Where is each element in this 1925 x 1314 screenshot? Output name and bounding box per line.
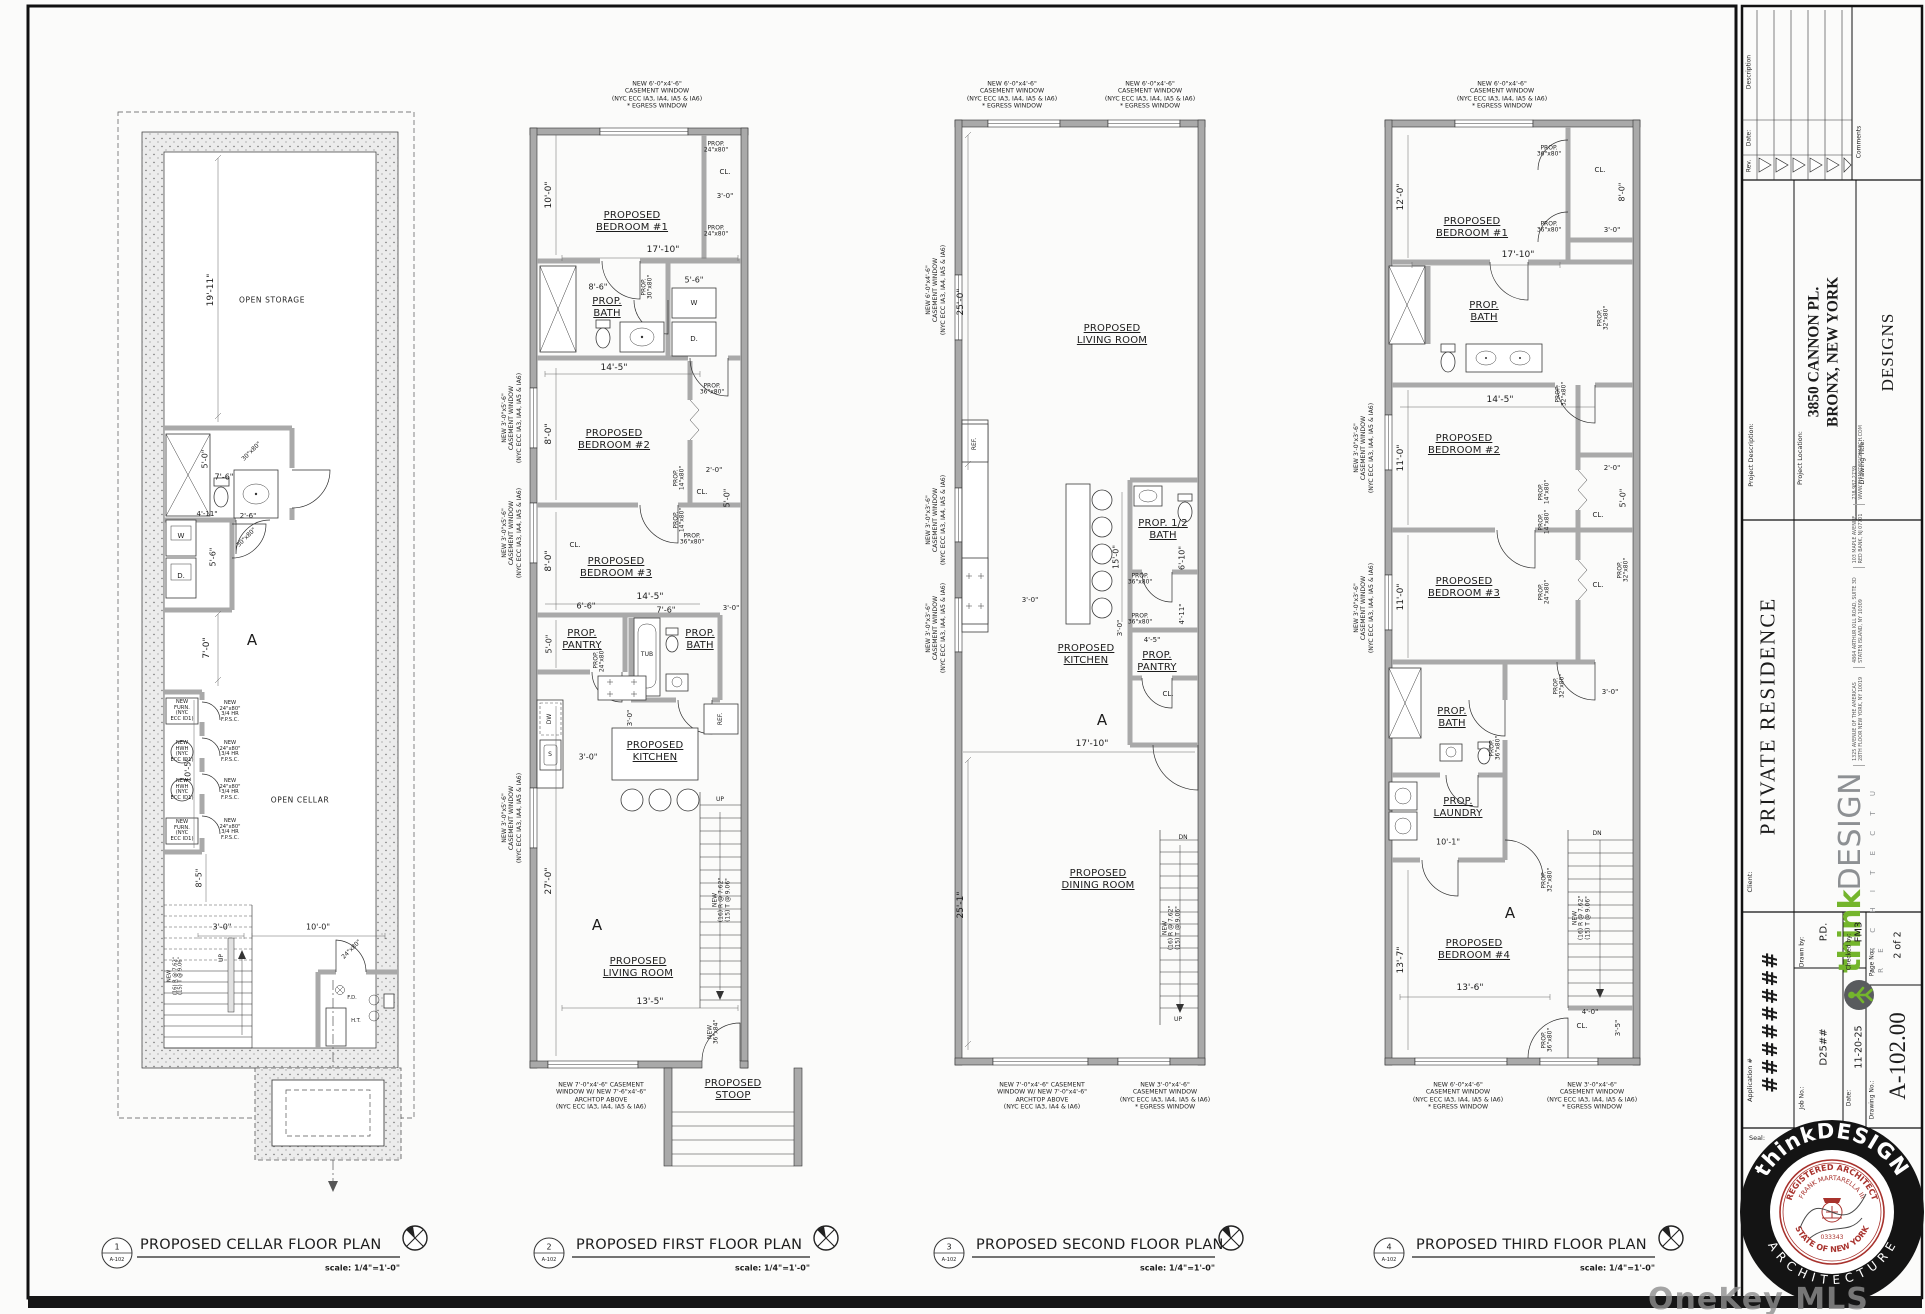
thinkdesign-logo-icon [1843, 979, 1875, 1011]
dimension-label: 8'-6" [589, 283, 608, 292]
appliance-label: D. [177, 572, 185, 580]
window-note: NEW 3'-0"x4'-6" CASEMENT WINDOW (NYC ECC… [1537, 1081, 1647, 1110]
application-value: ######## [1758, 951, 1782, 1093]
window-note: NEW 3'-0"x5'-6" CASEMENT WINDOW (NYC ECC… [501, 486, 523, 581]
dimension-label: 8'-0" [544, 550, 554, 571]
date-column-label: Date: [1746, 130, 1753, 146]
project-description-label: Project Description: [1747, 423, 1755, 487]
date-value: 11-20-25 [1854, 1025, 1865, 1068]
door-note: PROP. 36"x80" [1490, 736, 1503, 760]
plan-number: 3 [946, 1243, 951, 1252]
window-note: NEW 6'-0"x4'-6" CASEMENT WINDOW (NYC ECC… [1090, 80, 1210, 109]
room-label: PROPOSED BEDROOM #2 [578, 428, 650, 452]
drawn-by-value: P.D. [1819, 923, 1830, 942]
dimension-label: 11'-0" [1396, 444, 1406, 471]
stair-direction-label: DN [1592, 831, 1601, 837]
comments-column-label: Comments [1856, 126, 1863, 159]
project-location-value: 3850 CANNON PL. BRONX, NEW YORK [1805, 277, 1842, 427]
door-note: PROP. 32"x80" [1554, 674, 1567, 698]
door-note: PROP. 36"x80" [1537, 146, 1561, 159]
dimension-label: 2'-0" [706, 466, 723, 474]
dimension-label: 13'-5" [636, 997, 663, 1007]
dimension-label: 7'-0" [202, 637, 212, 658]
dimension-label: 4'-0" [1582, 1008, 1599, 1016]
room-label: PROPOSED DINING ROOM [1061, 868, 1134, 892]
dimension-label: 4'-11" [1178, 603, 1186, 624]
dimension-label: 25'-1" [956, 891, 966, 918]
dimension-label: 2'-0" [1604, 464, 1621, 472]
window-note: NEW 3'-0"x3'-6" CASEMENT WINDOW (NYC ECC… [925, 473, 947, 568]
stair-direction-label: UP [219, 954, 225, 962]
room-label: PROPOSED BEDROOM #1 [596, 210, 668, 234]
dimension-label: 3'-0" [213, 923, 232, 932]
drawing-no-label: Drawing No.: [1869, 1081, 1876, 1120]
rev-column-label: Rev. [1746, 160, 1753, 173]
logo-addresses: 1325 AVENUE OF THE AMERICAS28TH FLOOR NE… [1853, 421, 1865, 766]
room-label: OPEN STORAGE [239, 296, 305, 305]
plan-title: PROPOSED CELLAR FLOOR PLAN [140, 1237, 381, 1253]
dimension-label: 13'-7" [1396, 946, 1406, 973]
equipment-note: NEW HWH (NYC ECC ID1) [170, 779, 193, 801]
plan-sheet-ref: A-102 [942, 1257, 957, 1263]
equipment-note: NEW FURN. (NYC ECC ID1) [170, 700, 193, 722]
dimension-label: 12'-0" [1396, 183, 1406, 210]
project-location-label: Project Location: [1796, 431, 1804, 485]
window-note: NEW 6'-0"x4'-6" CASEMENT WINDOW (NYC ECC… [1398, 1081, 1518, 1110]
dimension-label: 5'-0" [545, 635, 554, 654]
plan-sheet-ref: A-102 [110, 1257, 125, 1263]
door-note: PROP. 14"x80" [674, 466, 687, 490]
client-label: Client: [1746, 871, 1754, 892]
door-note: PROP. 32"x80" [1598, 306, 1611, 330]
door-note: NEW 24"x80" 3/4 HR F.P.S.C. [219, 701, 240, 723]
dimension-label: 10'-1" [1436, 838, 1460, 847]
appliance-label: W [691, 299, 698, 307]
client-value: PRIVATE RESIDENCE [1756, 597, 1781, 835]
plan-number: 4 [1386, 1243, 1391, 1252]
description-column-label: Description [1746, 55, 1753, 89]
fixture-label: TUB [641, 652, 653, 658]
stair-note: NEW (16) R @ 7.62" (15) T @ 9.06" [168, 957, 185, 995]
closet-label: CL. [1594, 166, 1605, 174]
door-note: PROP. 36"x80" [1128, 614, 1152, 627]
dimension-label: 8'-0" [544, 423, 554, 444]
drawing-no-value: A-102.00 [1885, 1012, 1911, 1100]
appliance-label: DW [547, 714, 553, 725]
window-note: NEW 7'-0"x4'-6" CASEMENT WINDOW W/ NEW 7… [967, 1081, 1117, 1110]
closet-label: CL. [1576, 1022, 1587, 1030]
room-label: PROPOSED BEDROOM #3 [580, 556, 652, 580]
closet-label: CL. [1592, 511, 1603, 519]
room-label: PROPOSED BEDROOM #4 [1438, 938, 1510, 962]
door-note: PROP. 36"x80" [1537, 222, 1561, 235]
dimension-label: 3'-0" [1022, 596, 1039, 604]
dimension-label: 4'-5" [1144, 636, 1161, 644]
dimension-label: 5'-0" [723, 489, 732, 508]
door-note: NEW 24"x80" 3/4 HR F.P.S.C. [219, 819, 240, 841]
stair-note: NEW (16) R @ 7.62" (15) T @ 9.06" [1162, 906, 1181, 950]
door-note: PROP. 36"x80" [680, 534, 704, 547]
door-note: PROP. 32"x80" [1618, 558, 1631, 582]
dimension-label: 3'-5" [1614, 1020, 1622, 1037]
window-note: NEW 3'-0"x3'-6" CASEMENT WINDOW (NYC ECC… [925, 581, 947, 676]
door-note: NEW 36"x84" [708, 1020, 721, 1044]
plan-sheet-ref: A-102 [542, 1257, 557, 1263]
third-floor-geometry [1385, 120, 1640, 1065]
fixture-label: H.T. [351, 1019, 361, 1025]
cellar-geometry [118, 112, 414, 1192]
window-note: NEW 7'-0"x4'-6" CASEMENT WINDOW W/ NEW 7… [526, 1081, 676, 1110]
door-note: PROP. 30"x80" [642, 275, 655, 299]
door-note: PROP. 24"x80" [1539, 580, 1552, 604]
dimension-label: 19'-11" [206, 274, 216, 307]
dimension-label: 14'-5" [600, 363, 627, 373]
checked-by-value: FM3 [1854, 922, 1865, 943]
stair-note: NEW (16) R @ 7.62" (15) T @ 9.06" [1572, 896, 1591, 940]
date-label: Date: [1846, 1090, 1853, 1106]
plan-title: PROPOSED THIRD FLOOR PLAN [1416, 1237, 1647, 1253]
door-note: PROP. 36"x80" [1128, 574, 1152, 587]
room-label: PROP. BATH [1469, 300, 1499, 324]
dimension-label: 3'-0" [579, 753, 598, 762]
seal-license-number: 033343 [1821, 1234, 1844, 1241]
appliance-label: D. [690, 335, 698, 343]
dimension-label: 25'-0" [956, 288, 966, 315]
dimension-label: 14'-5" [1486, 395, 1513, 405]
plan-scale: scale: 1/4"=1'-0" [735, 1264, 810, 1273]
room-label: PROPOSED LIVING ROOM [1077, 323, 1147, 347]
section-cut-label: A [1505, 904, 1515, 922]
drawn-by-label: Drawn by: [1799, 937, 1806, 967]
closet-label: CL. [719, 168, 730, 176]
stair-note: NEW (16) R @ 7.62" (15) T @ 9.06" [712, 878, 731, 922]
room-label: PROP. BATH [1437, 706, 1467, 730]
dimension-label: 7'-6" [215, 473, 234, 482]
plan-number: 1 [114, 1243, 119, 1252]
drawing-sheet: thinkDESIGN A R C H I T E C T U R E REGI… [0, 0, 1925, 1314]
dimension-label: 6'-6" [577, 602, 596, 611]
dimension-label: 3'-0" [1116, 620, 1124, 637]
door-note: PROP. 24"x80" [704, 142, 728, 155]
job-no-label: Job No.: [1799, 1086, 1806, 1109]
dimension-label: 3'-0" [1602, 688, 1619, 696]
window-note: NEW 3'-0"x3'-6" CASEMENT WINDOW (NYC ECC… [1353, 401, 1375, 496]
page-no-label: Page No.: [1869, 948, 1876, 976]
dimension-label: 17'-10" [647, 245, 680, 255]
window-note: NEW 3'-0"x5'-6" CASEMENT WINDOW (NYC ECC… [501, 771, 523, 866]
window-note: NEW 3'-0"x4'-6" CASEMENT WINDOW (NYC ECC… [1110, 1081, 1220, 1110]
room-label: PROPOSED STOOP [705, 1078, 762, 1102]
room-label: PROPOSED KITCHEN [627, 740, 684, 764]
window-note: NEW 6'-0"x4'-6" CASEMENT WINDOW (NYC ECC… [591, 80, 723, 109]
room-label: OPEN CELLAR [271, 796, 330, 805]
stair-direction-label: DN [1178, 835, 1187, 841]
plan-title: PROPOSED SECOND FLOOR PLAN [976, 1237, 1224, 1253]
window-note: NEW 6'-0"x4'-6" CASEMENT WINDOW (NYC ECC… [952, 80, 1072, 109]
window-note: NEW 3'-0"x3'-6" CASEMENT WINDOW (NYC ECC… [1353, 561, 1375, 656]
appliance-label: W [178, 532, 185, 540]
section-cut-label: A [247, 631, 257, 649]
dimension-label: 13'-6" [1456, 983, 1483, 993]
door-note: NEW 24"x80" 3/4 HR F.P.S.C. [219, 741, 240, 763]
section-cut-label: A [1097, 711, 1107, 729]
architect-seal: thinkDESIGN A R C H I T E C T U R E REGI… [1740, 1119, 1924, 1304]
room-label: PROP. BATH [685, 628, 715, 652]
dimension-label: 3'-0" [626, 710, 634, 727]
room-label: PROP. PANTRY [1137, 650, 1176, 674]
door-note: PROP. 24"x80" [594, 648, 607, 672]
dimension-label: 3'-0" [717, 192, 734, 200]
logo-architecture-text: A R C H I T E C T U R E [1869, 772, 1885, 973]
section-cut-label: A [592, 916, 602, 934]
appliance-label: REF. [972, 438, 978, 450]
appliance-label: S [548, 752, 552, 758]
door-note: PROP. 32"x80" [1556, 382, 1569, 406]
closet-label: CL. [1592, 581, 1603, 589]
room-label: PROPOSED LIVING ROOM [603, 956, 673, 980]
closet-label: CL. [1162, 690, 1173, 698]
dimension-label: 5'-0" [1619, 489, 1628, 508]
plan-scale: scale: 1/4"=1'-0" [1580, 1264, 1655, 1273]
window-note: NEW 3'-0"x5'-6" CASEMENT WINDOW (NYC ECC… [501, 371, 523, 466]
checked-by-label: Checked by: [1846, 934, 1853, 971]
watermark: OneKey MLS [1648, 1282, 1869, 1314]
plan-scale: scale: 1/4"=1'-0" [1140, 1264, 1215, 1273]
dimension-label: 4'-11" [196, 510, 217, 518]
equipment-note: NEW FURN. (NYC ECC ID1) [170, 820, 193, 842]
dimension-label: 15'-0" [1112, 545, 1121, 569]
dimension-label: 6'-10" [1178, 546, 1187, 570]
plan-number: 2 [546, 1243, 551, 1252]
dimension-label: 11'-0" [1396, 583, 1406, 610]
door-note: PROP. 32"x80" [1542, 868, 1555, 892]
page-no-value: 2 of 2 [1893, 931, 1904, 958]
appliance-label: REF. [718, 713, 724, 725]
dimension-label: 7'-6" [657, 606, 676, 615]
door-note: PROP. 14"x80" [1539, 480, 1552, 504]
dimension-label: 8'-5" [195, 869, 204, 888]
dimension-label: 8'-0" [1618, 183, 1627, 202]
door-note: PROP. 14"x80" [674, 508, 687, 532]
dimension-label: 10'-0" [544, 181, 554, 208]
window-note: NEW 6'-0"x4'-6" CASEMENT WINDOW (NYC ECC… [1436, 80, 1568, 109]
dimension-label: 17'-10" [1076, 739, 1109, 749]
floorplan-geometry: thinkDESIGN A R C H I T E C T U R E REGI… [0, 0, 1925, 1314]
door-note: PROP. 24"x80" [704, 226, 728, 239]
dimension-label: 10'-5" [184, 758, 193, 782]
logo-design-text: DESIGN [1833, 772, 1868, 891]
dimension-label: 10'-0" [306, 923, 330, 932]
dimension-label: 14'-5" [636, 592, 663, 602]
dimension-label: 5'-6" [685, 276, 704, 285]
door-note: NEW 24"x80" 3/4 HR F.P.S.C. [219, 779, 240, 801]
dimension-label: 2'-6" [240, 512, 257, 520]
application-label: Application # [1746, 1058, 1754, 1102]
room-label: PROPOSED KITCHEN [1058, 643, 1115, 667]
plan-sheet-ref: A-102 [1382, 1257, 1397, 1263]
dimension-label: 27'-0" [544, 867, 554, 894]
dimension-label: 5'-6" [209, 548, 218, 567]
window-note: NEW 6'-0"x4'-6" CASEMENT WINDOW (NYC ECC… [925, 243, 947, 338]
room-label: PROP. 1/2 BATH [1138, 518, 1188, 542]
door-note: PROP. 14"x80" [1539, 510, 1552, 534]
door-note: PROP. 36"x80" [700, 384, 724, 397]
room-label: PROP. BATH [592, 296, 622, 320]
dimension-label: 3'-0" [1604, 226, 1621, 234]
door-note: PROP. 36"x80" [1542, 1028, 1555, 1052]
thinkdesign-logo: thinkDESIGN A R C H I T E C T U R E 1325… [1798, 521, 1920, 911]
room-label: PROP. LAUNDRY [1434, 796, 1483, 820]
drawing-title-value: DESIGNS [1878, 313, 1898, 392]
room-label: PROPOSED BEDROOM #1 [1436, 216, 1508, 240]
dimension-label: 5'-0" [201, 450, 210, 469]
dimension-label: 17'-10" [1502, 250, 1535, 260]
closet-label: CL. [696, 488, 707, 496]
room-label: PROPOSED BEDROOM #2 [1428, 433, 1500, 457]
closet-label: CL. [569, 541, 580, 549]
dimension-label: 3'-0" [723, 604, 740, 612]
stair-direction-label: UP [1174, 1017, 1182, 1023]
seal-label: Seal: [1749, 1134, 1765, 1142]
stair-direction-label: UP [716, 797, 724, 803]
job-no-value: D25## [1819, 1028, 1830, 1065]
plan-scale: scale: 1/4"=1'-0" [325, 1264, 400, 1273]
fixture-label: F.D. [347, 996, 356, 1002]
plan-title: PROPOSED FIRST FLOOR PLAN [576, 1237, 802, 1253]
room-label: PROPOSED BEDROOM #3 [1428, 576, 1500, 600]
